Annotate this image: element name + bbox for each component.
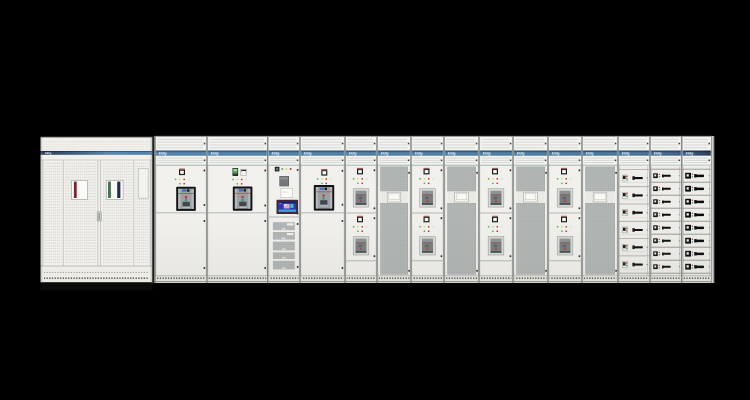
svg-text:Eldig: Eldig (159, 152, 167, 156)
svg-text:Eldig: Eldig (586, 152, 594, 156)
svg-text:Eldig: Eldig (381, 152, 389, 156)
svg-text:Eldig: Eldig (448, 152, 456, 156)
svg-text:Eldig: Eldig (349, 152, 357, 156)
svg-text:Eldig: Eldig (304, 152, 312, 156)
svg-text:Eldig: Eldig (483, 152, 491, 156)
svg-text:Eldig: Eldig (415, 152, 423, 156)
svg-text:Eldig: Eldig (45, 151, 52, 155)
svg-text:Eldig: Eldig (654, 152, 662, 156)
svg-text:Eldig: Eldig (686, 152, 694, 156)
svg-text:Eldig: Eldig (517, 152, 525, 156)
svg-text:Eldig: Eldig (622, 152, 630, 156)
svg-text:Eldig: Eldig (272, 152, 280, 156)
svg-text:Eldig: Eldig (211, 152, 219, 156)
svg-text:Eldig: Eldig (552, 152, 560, 156)
